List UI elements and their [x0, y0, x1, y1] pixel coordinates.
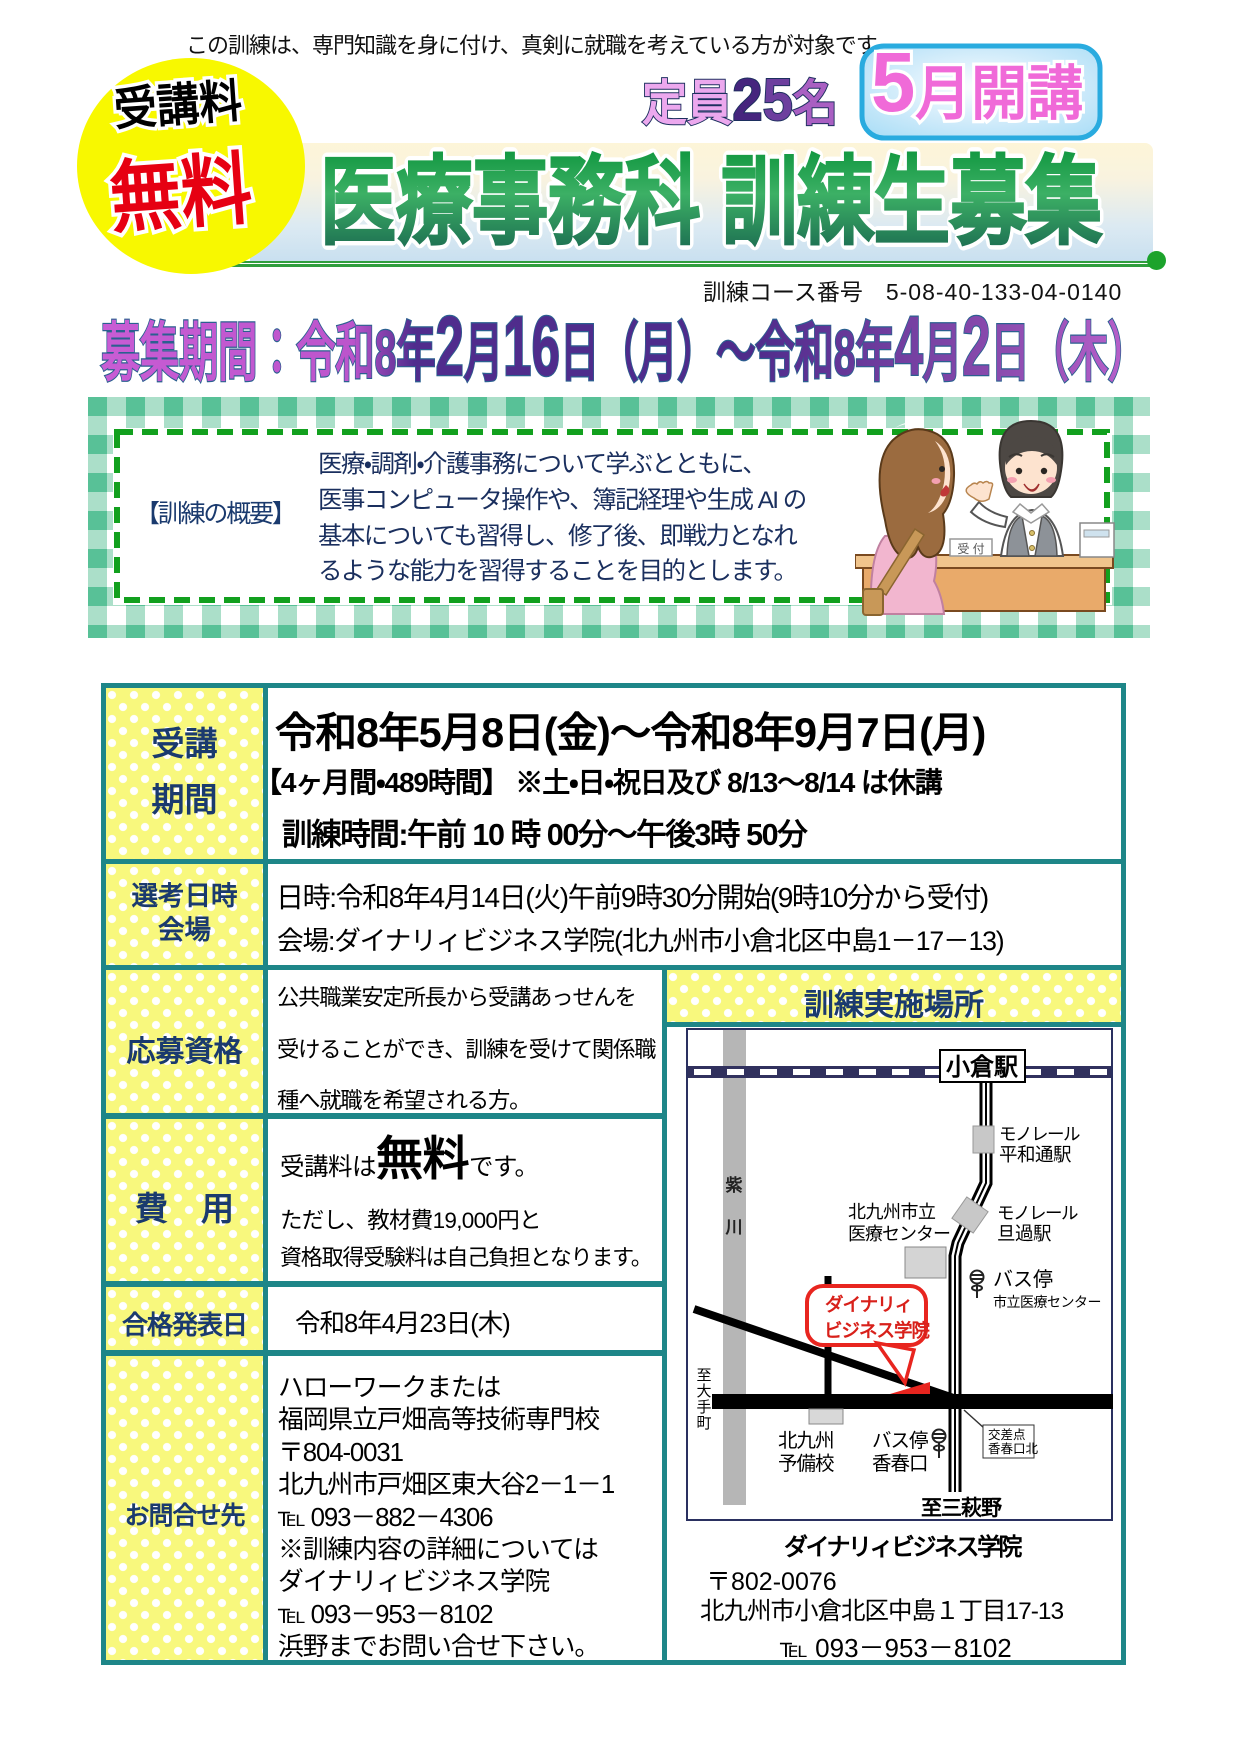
svg-text:紫: 紫: [726, 1175, 743, 1195]
svg-text:モノレール: モノレール: [997, 1203, 1078, 1223]
svg-text:旦過駅: 旦過駅: [997, 1223, 1051, 1244]
svg-text:北九州市立: 北九州市立: [848, 1202, 936, 1222]
svg-text:香春口: 香春口: [872, 1453, 928, 1475]
svg-text:町: 町: [696, 1415, 711, 1432]
svg-text:バス停: バス停: [993, 1268, 1053, 1291]
svg-text:至: 至: [696, 1367, 711, 1384]
svg-text:交差点: 交差点: [988, 1428, 1026, 1442]
svg-text:小倉駅: 小倉駅: [946, 1053, 1018, 1081]
svg-text:市立医療センター: 市立医療センター: [993, 1294, 1101, 1310]
svg-text:受講料: 受講料: [112, 75, 243, 136]
svg-text:募集期間：令和8年2月16日（月）～令和8年4月2日（木）: 募集期間：令和8年2月16日（月）～令和8年4月2日（木）: [100, 300, 1147, 393]
svg-text:平和通駅: 平和通駅: [999, 1144, 1071, 1165]
svg-text:川: 川: [725, 1218, 743, 1237]
svg-text:無料: 無料: [107, 144, 255, 243]
svg-text:至三萩野: 至三萩野: [921, 1496, 1002, 1520]
svg-text:定員25名: 定員25名: [642, 67, 838, 133]
svg-text:モノレール: モノレール: [999, 1124, 1080, 1144]
svg-text:香春口北: 香春口北: [988, 1442, 1039, 1456]
svg-text:バス停: バス停: [872, 1430, 928, 1452]
svg-text:ビジネス学院: ビジネス学院: [824, 1320, 931, 1341]
svg-text:予備校: 予備校: [778, 1453, 834, 1475]
svg-text:大: 大: [696, 1383, 711, 1400]
svg-text:医療事務科 訓練生募集: 医療事務科 訓練生募集: [320, 149, 1102, 256]
svg-text:受 付: 受 付: [957, 542, 984, 556]
svg-text:医療センター: 医療センター: [848, 1224, 950, 1244]
svg-text:手: 手: [696, 1399, 711, 1416]
svg-text:ダイナリィ: ダイナリィ: [825, 1294, 912, 1315]
svg-text:北九州: 北九州: [778, 1430, 834, 1452]
